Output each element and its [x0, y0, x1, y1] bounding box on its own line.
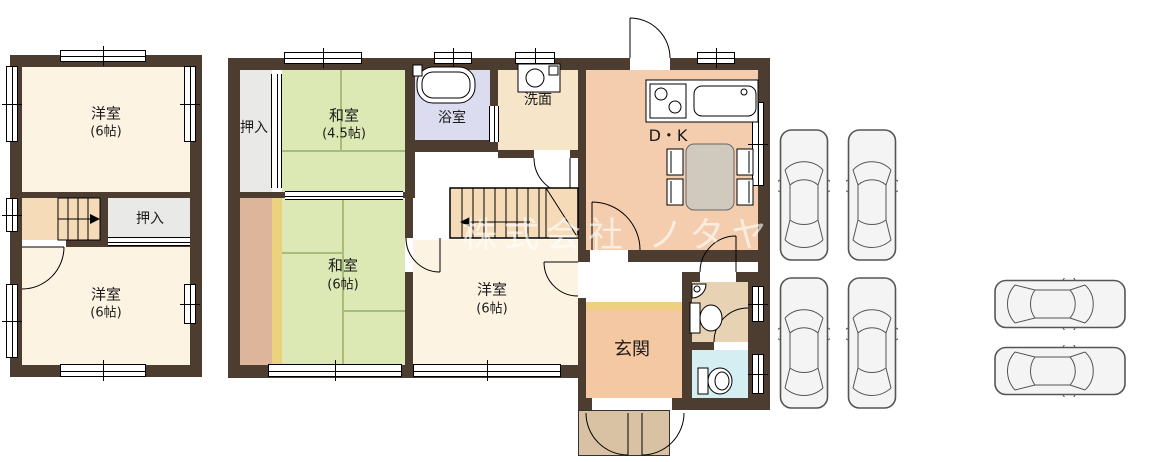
wall: [498, 150, 534, 158]
room-washroom: [498, 70, 578, 150]
entrance-step: [586, 302, 682, 310]
sliding-door: [108, 237, 190, 246]
car-icon: [995, 276, 1125, 331]
room-label: D・K: [649, 128, 688, 144]
window: [6, 198, 18, 232]
room-second-toilet: [692, 350, 748, 398]
wall: [578, 298, 586, 398]
sliding-door: [285, 191, 403, 200]
room-label: 和室: [328, 259, 358, 274]
window: [752, 102, 764, 186]
veranda-edge: [272, 198, 282, 365]
window: [752, 286, 764, 322]
room-label: 洗面: [524, 93, 552, 107]
window: [6, 66, 18, 142]
room-size-label: (6帖): [90, 307, 121, 320]
window: [184, 284, 196, 324]
stairs-2f: [58, 198, 100, 240]
room-size-label: (6帖): [476, 303, 507, 316]
window: [284, 52, 362, 64]
window: [60, 50, 146, 62]
door-opening: [405, 238, 413, 272]
wall: [405, 196, 413, 238]
room-label: 押入: [240, 121, 268, 135]
window: [268, 364, 402, 377]
window: [413, 364, 561, 377]
wall: [570, 150, 578, 158]
wall: [100, 198, 108, 240]
tatami-line: [282, 252, 342, 254]
door-opening: [534, 150, 570, 158]
car-icon: [844, 278, 899, 408]
room-label: 洋室: [91, 288, 121, 303]
door-opening: [592, 398, 672, 410]
floor-plan-canvas: 洋室 (6帖) 押入 洋室 (6帖) 押入 和室 (4.5帖) 浴室 洗面 D・…: [0, 0, 1159, 462]
wall: [692, 342, 714, 350]
window: [697, 52, 735, 64]
wall: [682, 282, 692, 398]
wall: [405, 140, 498, 152]
room-size-label: (6帖): [90, 126, 121, 139]
room-label: 浴室: [438, 111, 466, 125]
window: [6, 284, 18, 358]
car-icon: [776, 278, 831, 408]
tatami-line: [282, 150, 405, 152]
room-label: 洋室: [91, 107, 121, 122]
wall: [228, 58, 240, 378]
parking-area: [776, 130, 1125, 408]
car-icon: [776, 130, 831, 260]
room-size-label: (4.5帖): [322, 128, 366, 141]
door-arc: [630, 18, 670, 58]
door-arc: [534, 158, 570, 194]
wall: [682, 272, 700, 282]
sliding-door: [489, 106, 499, 142]
room-size-label: (6帖): [327, 279, 358, 292]
room-label: 和室: [329, 109, 359, 124]
entrance-porch: [578, 410, 670, 456]
window: [60, 364, 146, 377]
room-toilet: [692, 282, 748, 342]
veranda-strip: [240, 198, 272, 365]
door-opening: [630, 58, 670, 70]
window: [515, 52, 555, 64]
room-label: 玄関: [614, 341, 650, 359]
car-icon: [844, 130, 899, 260]
door-opening: [714, 342, 748, 350]
room-label: 洋室: [477, 283, 507, 298]
company-watermark: 株式会社 ノタヤ: [462, 207, 773, 258]
door-opening: [700, 272, 736, 282]
window: [752, 354, 764, 394]
door-opening: [22, 240, 66, 247]
wall: [405, 58, 415, 198]
room-bathroom: [415, 70, 490, 140]
car-icon: [995, 343, 1125, 398]
door-opening: [578, 262, 586, 298]
window: [434, 52, 472, 64]
tatami-line: [344, 310, 405, 312]
stair-landing-2f: [22, 198, 58, 240]
wall: [405, 272, 413, 365]
window: [184, 66, 196, 142]
sliding-door: [271, 74, 282, 188]
wall: [736, 272, 758, 282]
room-label: 押入: [136, 212, 164, 226]
